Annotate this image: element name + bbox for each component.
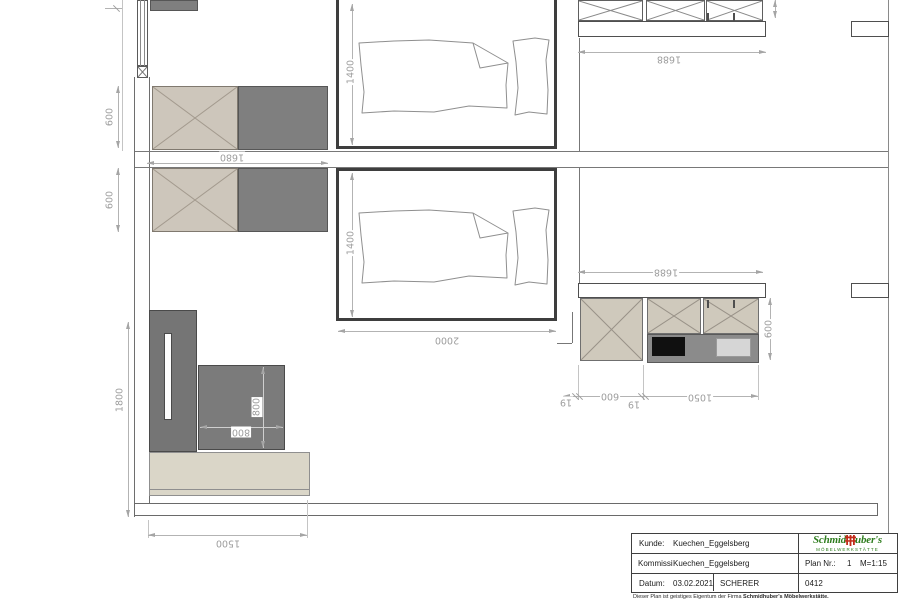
dim-label-niche-base: 600 (600, 391, 620, 402)
dim-line-bed2-length (338, 331, 556, 332)
kitchen-top-countertop (578, 21, 766, 37)
wall-kitchen-left-lower (579, 168, 580, 283)
dim-label-niche-gap-right: 19 (627, 399, 641, 410)
wardrobe-slot (164, 333, 172, 420)
podium-edge-line (149, 489, 310, 490)
logo-subtitle: MÖBELWERKSTÄTTE (816, 547, 879, 552)
top-right-shelf (851, 21, 889, 37)
wardrobe-tall-cabinet (149, 310, 197, 452)
plan-nr-label: Plan Nr.: (805, 559, 836, 568)
kitchen-top-crossed-cabinet (646, 0, 705, 21)
corridor-wall-top-line (135, 151, 888, 152)
dim-extension-line (307, 500, 308, 538)
cabinet-handle (707, 13, 709, 21)
dim-label-bed2-length: 2000 (434, 335, 460, 346)
logo-text-part2: uber's (855, 536, 882, 545)
dim-line-niche-chain (563, 396, 758, 397)
sideboard2-gray-cabinet (238, 168, 328, 232)
light-appliance-front (716, 338, 751, 357)
bed1-drawing (339, 0, 555, 150)
kitchen-upper-crossed-cabinet (703, 298, 759, 334)
disclaimer-plain: Dieser Plan ist geistiges Eigentum der F… (633, 594, 743, 600)
title-block-divider (632, 573, 897, 574)
title-block-divider (632, 553, 897, 554)
dim-extension-line (758, 365, 759, 400)
floor-plan-canvas: 600 1680 600 1400 1688 1400 2000 1688 60… (0, 0, 900, 600)
dim-label-row1-depth: 600 (105, 107, 116, 127)
dim-label-wardrobe-height: 1800 (115, 387, 126, 413)
wall-niche-side (572, 312, 573, 343)
copyright-disclaimer: Dieser Plan ist geistiges Eigentum der F… (633, 594, 829, 600)
kunde-value: Kuechen_Eggelsberg (673, 539, 750, 548)
kitchen-top-crossed-cabinet (706, 0, 763, 21)
dim-cut-top-right (775, 0, 776, 18)
dim-line-row1-width (147, 163, 328, 164)
dim-line-row1-depth (118, 86, 119, 148)
dim-label-bed2-width: 1400 (346, 230, 357, 256)
mid-right-shelf (851, 283, 889, 298)
kunde-label: Kunde: (639, 539, 664, 548)
wall-post-line (140, 0, 141, 66)
kommission-label: Kommission: (638, 559, 673, 568)
company-logo: Schmid uber's MÖBELWERKSTÄTTE (798, 534, 897, 553)
dim-label-seat-depth: 800 (252, 397, 263, 417)
dim-label-kitchen-mid-depth: 600 (764, 319, 775, 339)
disclaimer-bold: Schmidhuber's Möbelwerkstätte. (743, 594, 829, 600)
kitchen-mid-countertop (578, 283, 766, 298)
dim-label-row2-depth: 600 (105, 190, 116, 210)
bed2-drawing (339, 170, 555, 320)
dim-line-podium-width (148, 535, 307, 536)
sideboard1-gray-cabinet (238, 86, 328, 150)
datum-value: 03.02.2021 (673, 579, 713, 588)
dim-line-seat-depth (263, 367, 264, 448)
wall-bottom-band (134, 503, 878, 516)
kommission-value: Kuechen_Eggelsberg (673, 559, 750, 568)
dim-label-seat-width: 800 (231, 427, 251, 438)
title-block-divider (713, 574, 714, 591)
wall-post-line (144, 0, 145, 66)
logo-text-part1: Schmid (813, 536, 846, 545)
dim-label-bed1-width: 1400 (346, 59, 357, 85)
dim-label-kitchen-top-width: 1688 (656, 54, 682, 65)
dim-cut-top-left (105, 8, 122, 9)
title-block: Kunde: Kuechen_Eggelsberg Kommission: Ku… (631, 533, 898, 593)
wall-brace-x-box (137, 66, 148, 78)
dim-label-niche-gap-left: 19 (559, 397, 573, 408)
top-wall-cabinet (150, 0, 198, 11)
bearbeiter-value: SCHERER (720, 579, 759, 588)
wall-kitchen-left-upper (579, 38, 580, 151)
dim-label-podium-width: 1500 (215, 538, 241, 549)
sideboard1-crossed-cabinet (152, 86, 238, 150)
wall-niche-bottom (557, 343, 572, 344)
cabinet-handle (733, 13, 735, 21)
dim-label-row1-width: 1680 (219, 152, 245, 163)
cabinet-handle (733, 300, 735, 308)
kitchen-top-crossed-cabinet (578, 0, 643, 21)
sideboard2-crossed-cabinet (152, 168, 238, 232)
commission-number: 0412 (805, 579, 823, 588)
dim-label-kitchen-mid-width: 1688 (653, 267, 679, 278)
wall-post-top-left (137, 0, 148, 66)
wall-right (888, 0, 889, 533)
wall-left-outer (134, 77, 135, 517)
datum-label: Datum: (639, 579, 665, 588)
plan-nr-value: 1 (847, 559, 851, 568)
oven-black-appliance (652, 337, 685, 356)
dim-extension-line (122, 0, 123, 151)
dim-line-row2-depth (118, 168, 119, 232)
kitchen-tall-crossed-cabinet (580, 298, 643, 361)
dim-label-niche-counter: 1050 (687, 392, 713, 403)
scale-value: M=1:15 (860, 559, 887, 568)
dim-line-wardrobe-height (128, 322, 129, 517)
cabinet-handle (707, 300, 709, 308)
kitchen-upper-crossed-cabinet (647, 298, 701, 334)
